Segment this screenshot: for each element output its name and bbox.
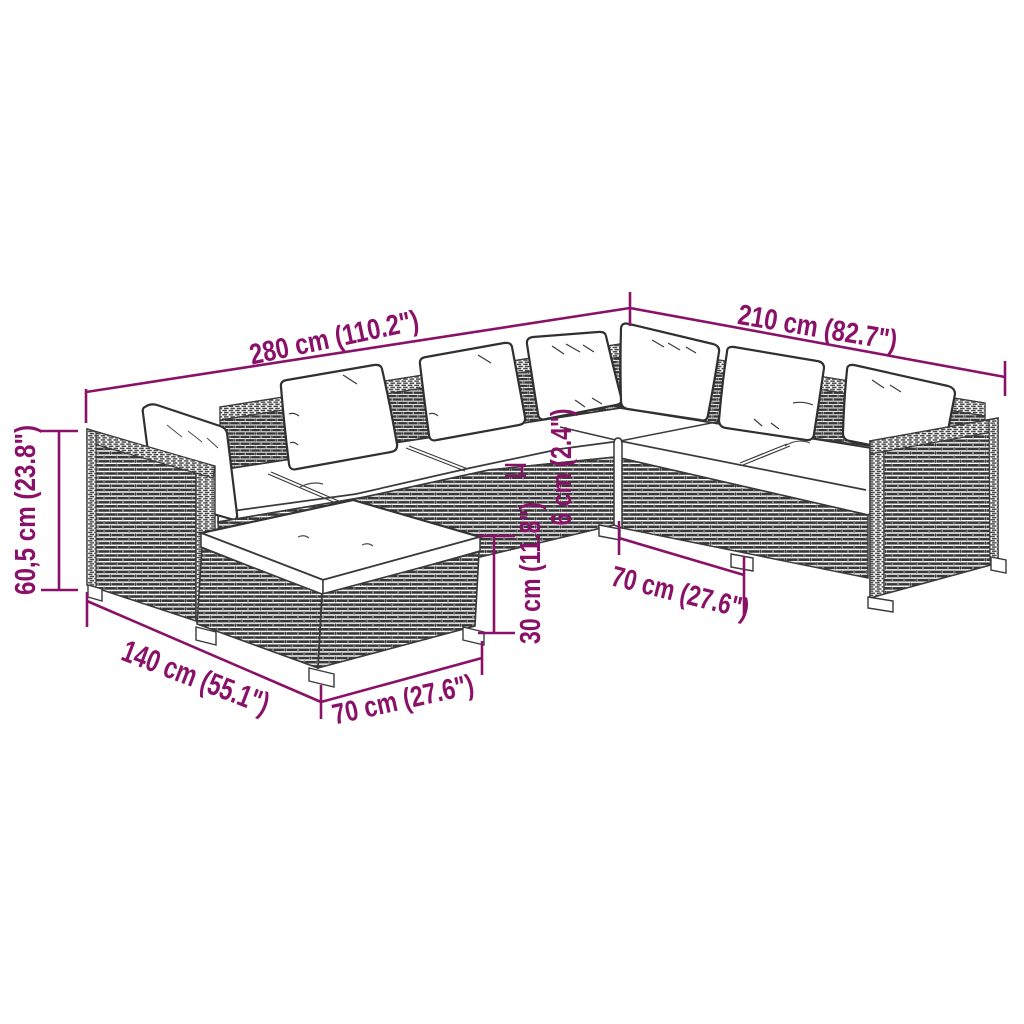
svg-text:210 cm (82.7"): 210 cm (82.7"): [735, 299, 899, 357]
svg-text:6 cm (2.4"): 6 cm (2.4"): [546, 409, 578, 526]
svg-text:30 cm (11.8"): 30 cm (11.8"): [515, 502, 547, 644]
svg-text:60,5 cm (23.8"): 60,5 cm (23.8"): [10, 425, 42, 595]
svg-text:280 cm (110.2"): 280 cm (110.2"): [247, 305, 422, 371]
svg-text:140 cm (55.1"): 140 cm (55.1"): [117, 633, 274, 721]
